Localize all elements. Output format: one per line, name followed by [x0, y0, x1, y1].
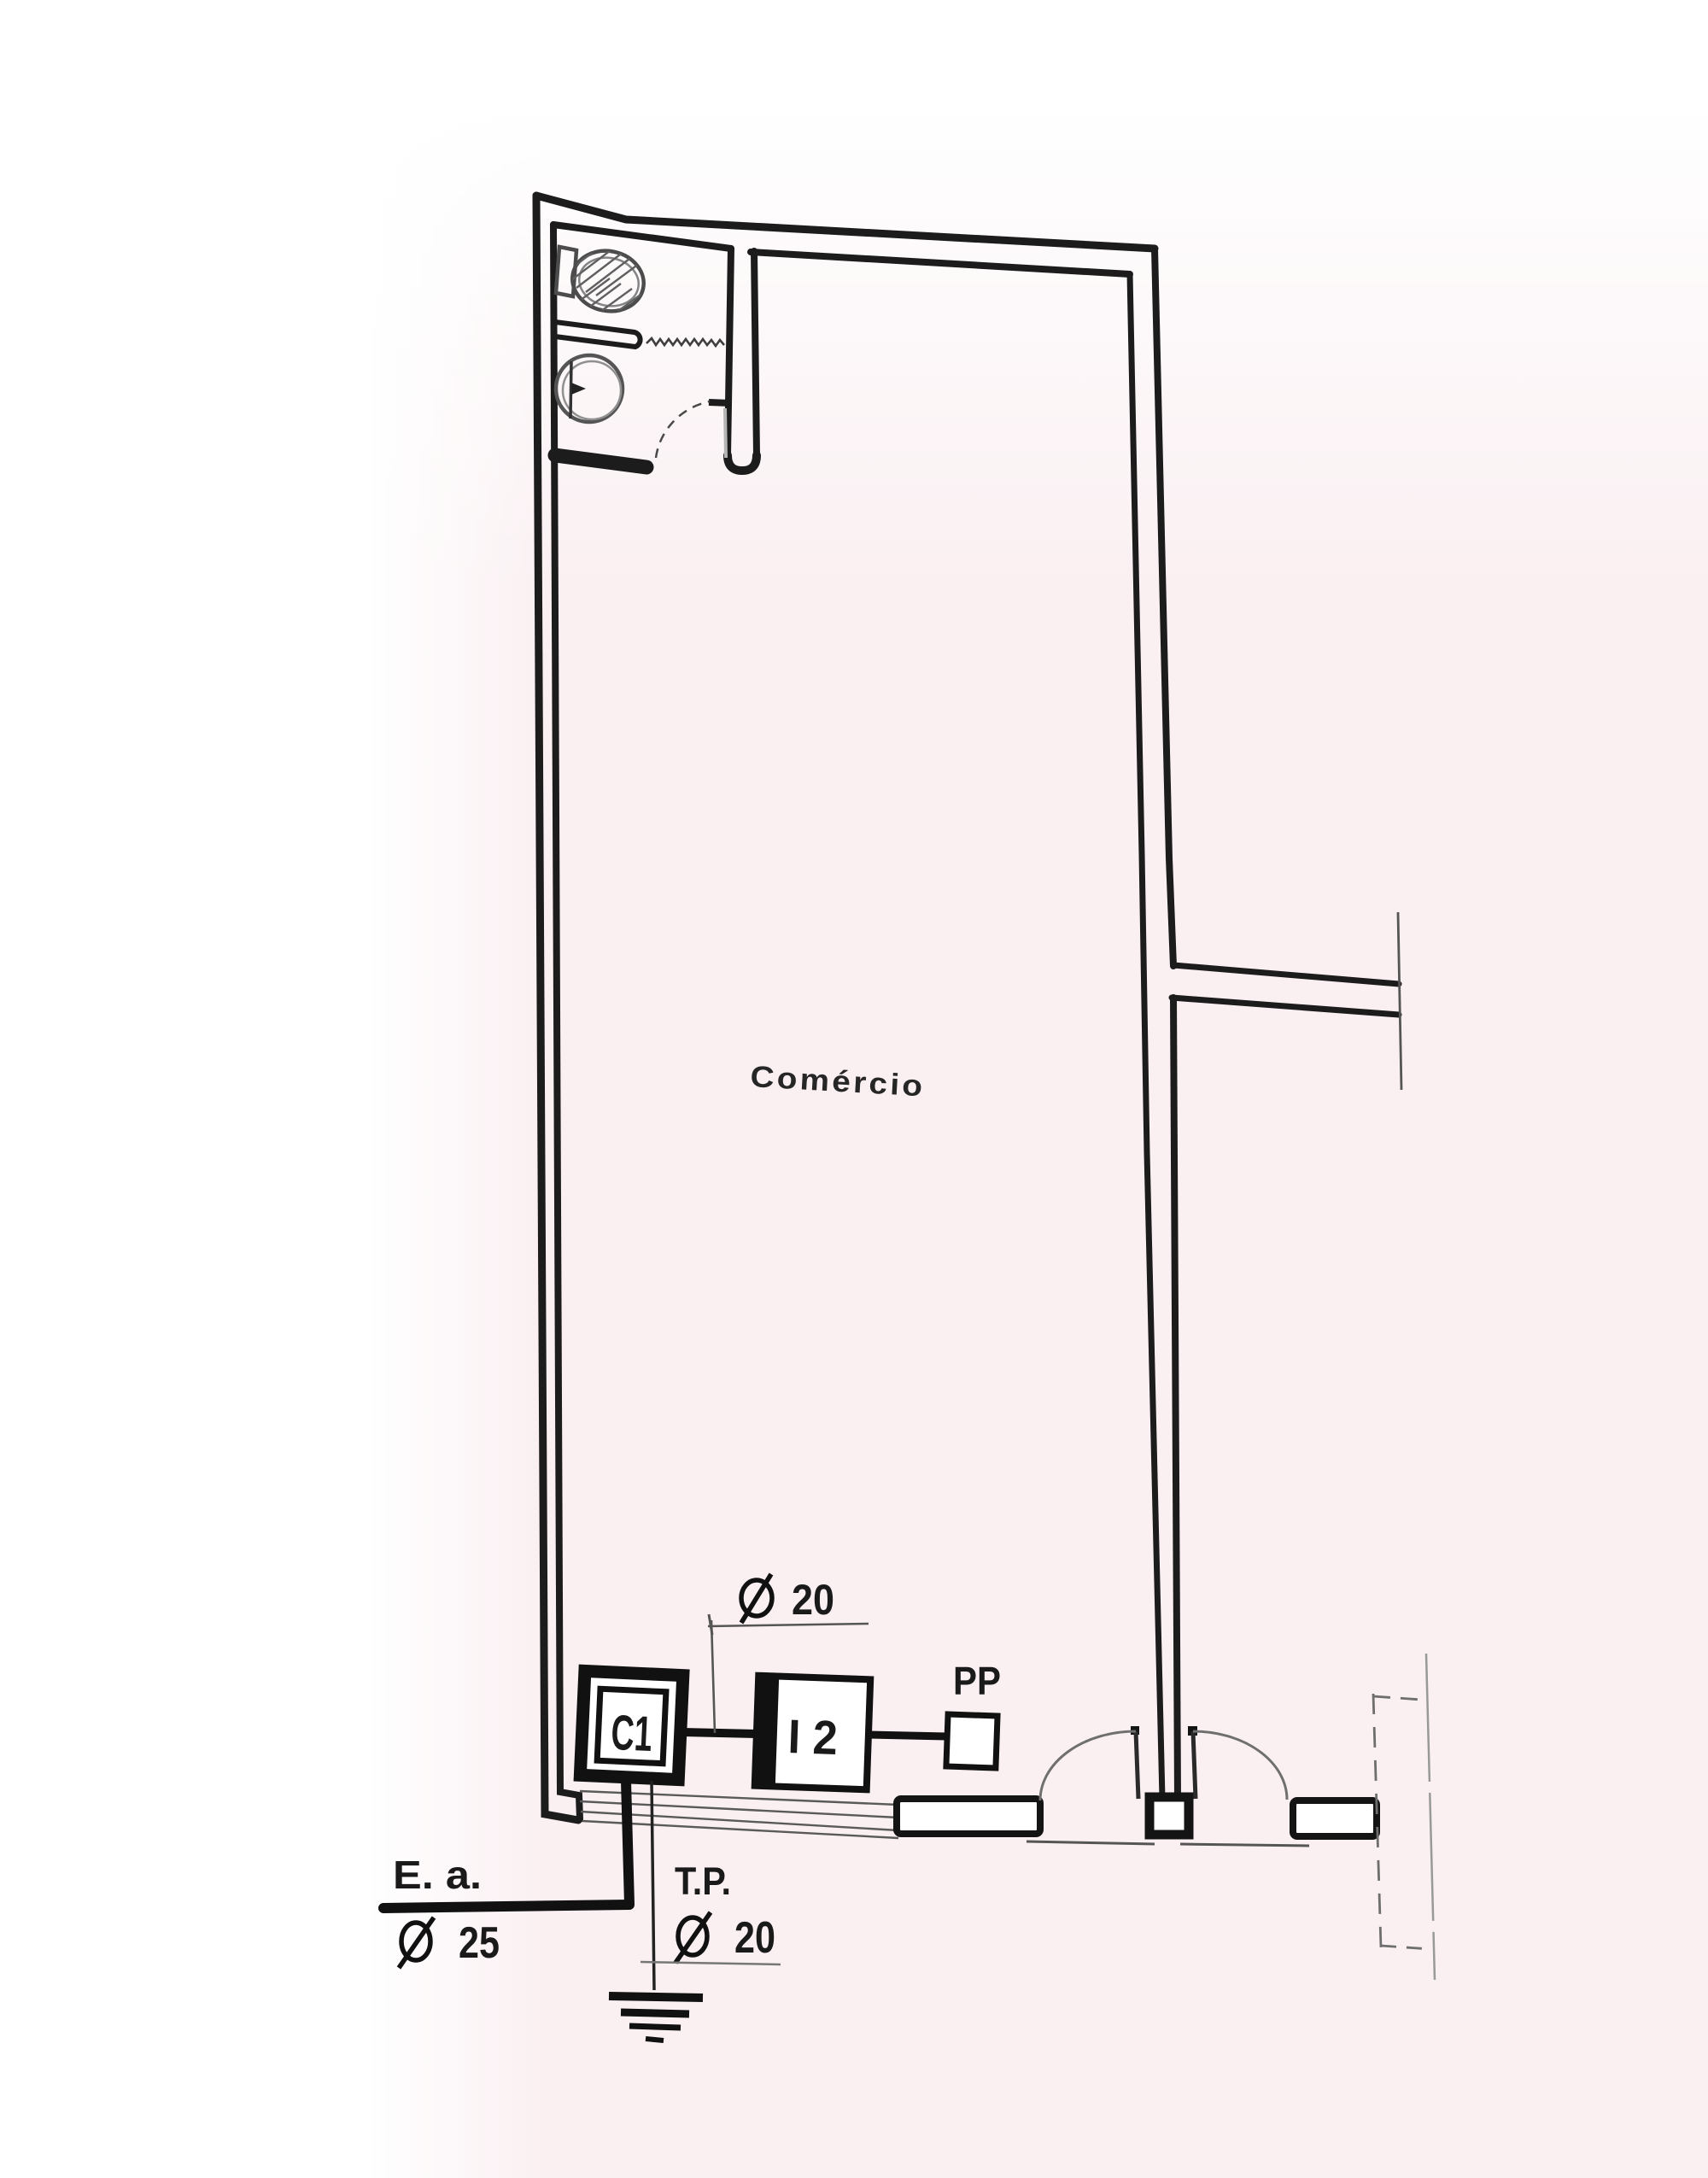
- svg-text:I 2: I 2: [787, 1709, 839, 1765]
- svg-text:25: 25: [459, 1918, 500, 1968]
- svg-text:T.P.: T.P.: [675, 1859, 731, 1903]
- svg-text:PP: PP: [953, 1659, 1001, 1703]
- svg-text:20: 20: [792, 1576, 834, 1624]
- svg-text:E. a.: E. a.: [393, 1853, 482, 1897]
- svg-text:20: 20: [734, 1913, 775, 1963]
- svg-text:C1: C1: [610, 1705, 653, 1762]
